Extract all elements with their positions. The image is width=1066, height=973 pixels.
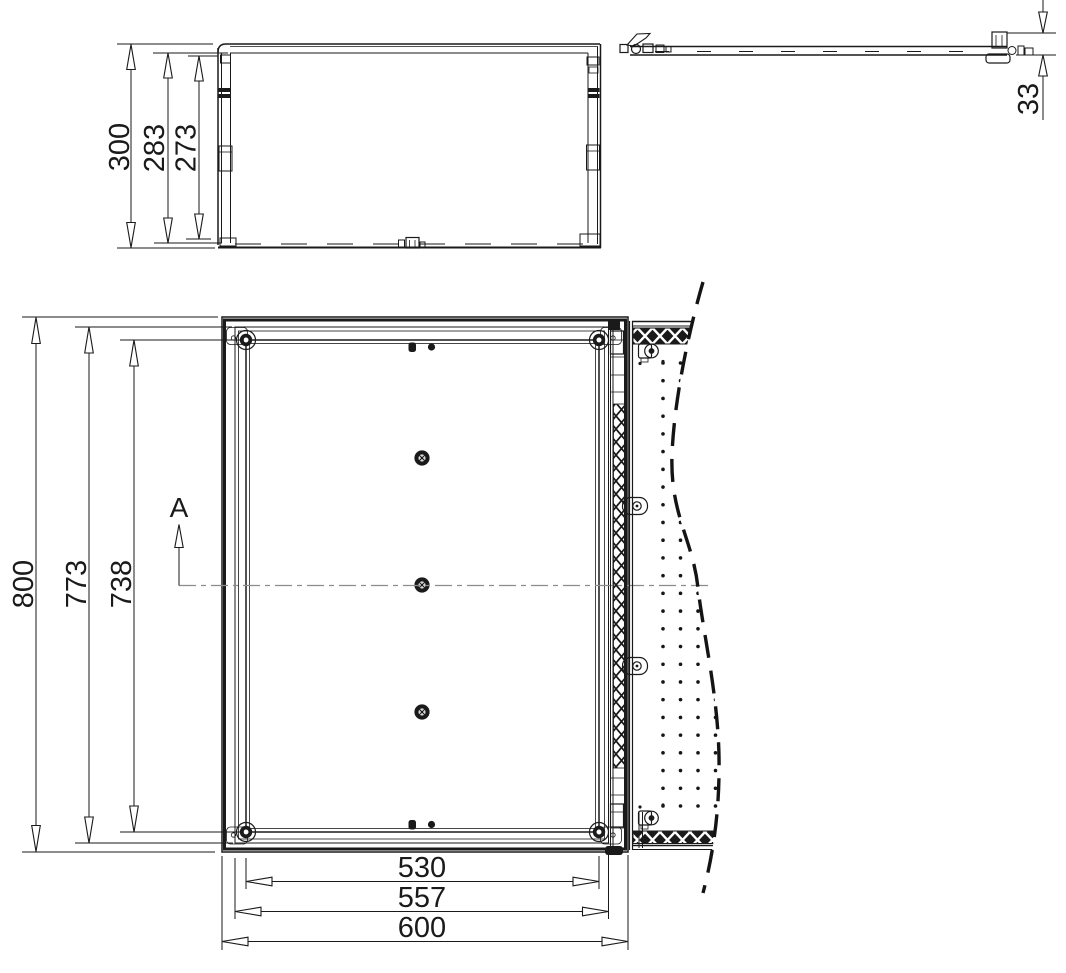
side-right-seal-band-1 <box>588 88 600 92</box>
perforation-dot <box>679 592 683 596</box>
perforation-dot <box>661 432 665 436</box>
perforation-dot <box>696 645 700 649</box>
perforation-dot <box>661 414 665 418</box>
perforation-dot <box>679 769 683 773</box>
perforation-dot <box>661 556 665 560</box>
door-edge-gasket-zigzag <box>614 404 626 768</box>
perforation-dot <box>661 574 665 578</box>
dim-label: 600 <box>398 912 446 944</box>
hinge-screw-dot <box>661 360 664 363</box>
section-label: A <box>170 492 189 523</box>
dim-label: 530 <box>398 852 446 884</box>
perforation-dot <box>661 627 665 631</box>
perforation-dot <box>661 609 665 613</box>
keyhole-slot <box>409 820 417 830</box>
perforation-dot <box>661 698 665 702</box>
dim-label: 557 <box>398 882 446 914</box>
plate-boss <box>414 704 429 719</box>
dim-label: 773 <box>61 560 93 608</box>
perforation-dot <box>661 716 665 720</box>
perforation-dot <box>696 698 700 702</box>
perforation-dot <box>661 503 665 507</box>
perforation-dot <box>714 804 718 808</box>
perforation-dot <box>696 733 700 737</box>
dim-label: 300 <box>104 123 136 171</box>
dim-label: 738 <box>106 560 138 608</box>
door-top-bracket <box>608 319 620 330</box>
perforation-dot <box>679 574 683 578</box>
perforation-dot <box>679 751 683 755</box>
perforation-dot <box>714 733 718 737</box>
hinge-bracket-pin <box>636 505 639 508</box>
perforation-dot <box>679 609 683 613</box>
perforation-dot <box>661 397 665 401</box>
drawing-canvas: 300 283 273 33 <box>0 0 1066 973</box>
side-right-seal-band-2 <box>588 94 600 98</box>
hinge-screw-dot <box>638 362 641 365</box>
perforation-dot <box>679 786 683 790</box>
keyhole-slot <box>409 343 417 353</box>
perforation-dot <box>714 786 718 790</box>
perforation-dot <box>679 680 683 684</box>
hinge-knob-top-pin <box>649 348 655 354</box>
dim-label: 273 <box>171 124 203 172</box>
perforation-dot <box>661 379 665 383</box>
hinge-screw-dot <box>661 803 664 806</box>
door-bottom-foot <box>605 846 623 855</box>
perforation-dot <box>696 680 700 684</box>
perforation-dot <box>696 716 700 720</box>
hinge-screw-dot <box>638 805 641 808</box>
perforation-dot <box>661 680 665 684</box>
perforation-dot <box>679 662 683 666</box>
perforation-dot <box>679 733 683 737</box>
perforation-dot <box>661 786 665 790</box>
dim-label: 283 <box>139 124 171 172</box>
perforation-dot <box>696 804 700 808</box>
perforation-dot <box>679 538 683 542</box>
perforation-dot <box>661 521 665 525</box>
perforation-dot <box>661 662 665 666</box>
side-left-seal-band-1 <box>219 88 231 92</box>
perforation-dot <box>696 769 700 773</box>
perforation-dot <box>661 733 665 737</box>
side-left-seal-band-2 <box>219 94 231 98</box>
perforation-dot <box>661 450 665 454</box>
perforation-dot <box>661 538 665 542</box>
mount-hole <box>428 821 435 828</box>
perforation-dot <box>679 698 683 702</box>
perforation-dot <box>661 751 665 755</box>
perforation-dot <box>661 468 665 472</box>
perforation-dot <box>679 645 683 649</box>
dim-label: 800 <box>8 560 40 608</box>
mount-hole <box>428 343 435 350</box>
hinge-bracket-pin <box>636 665 639 668</box>
perforation-dot <box>679 556 683 560</box>
hinge-knob-bottom-pin <box>649 815 655 821</box>
plate-boss <box>414 450 429 465</box>
perforation-dot <box>696 751 700 755</box>
perforation-dot <box>661 645 665 649</box>
perforation-dot <box>696 786 700 790</box>
perforation-dot <box>679 627 683 631</box>
perforation-dot <box>696 627 700 631</box>
technical-drawing-page: 300 283 273 33 <box>0 0 1066 973</box>
perforation-dot <box>714 769 718 773</box>
perforation-dot <box>661 769 665 773</box>
perforation-dot <box>661 485 665 489</box>
perforation-dot <box>679 804 683 808</box>
perforation-dot <box>679 716 683 720</box>
perforation-dot <box>661 592 665 596</box>
dim-label: 33 <box>1013 83 1045 115</box>
perforation-dot <box>714 751 718 755</box>
perforation-dot <box>696 662 700 666</box>
